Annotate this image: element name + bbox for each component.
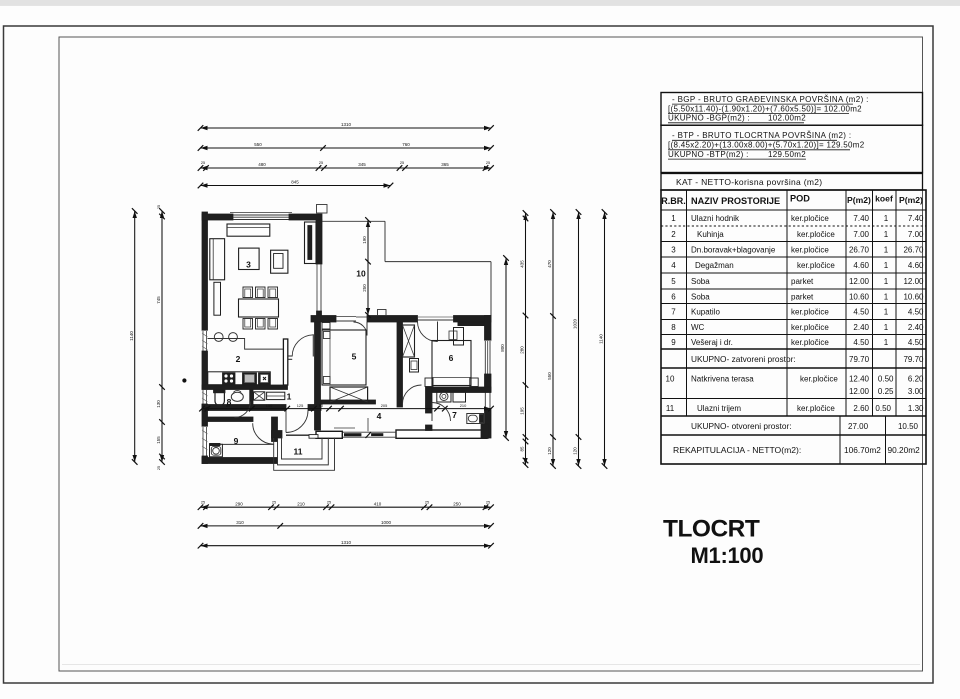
svg-text:Vešeraj i dr.: Vešeraj i dr. bbox=[691, 338, 733, 347]
svg-text:4.50: 4.50 bbox=[853, 308, 869, 317]
svg-text:1140: 1140 bbox=[599, 334, 604, 344]
svg-text:7.00: 7.00 bbox=[853, 230, 869, 239]
svg-text:65: 65 bbox=[226, 403, 230, 408]
svg-text:10: 10 bbox=[666, 375, 675, 384]
svg-text:Kupatilo: Kupatilo bbox=[691, 308, 720, 317]
svg-text:R.BR.: R.BR. bbox=[661, 196, 686, 206]
svg-text:195: 195 bbox=[520, 407, 525, 415]
svg-text:[(8.45x2.20)+(13.00x8.00)+(5.7: [(8.45x2.20)+(13.00x8.00)+(5.70x1.20)]= … bbox=[668, 141, 865, 150]
svg-text:85: 85 bbox=[520, 446, 525, 452]
svg-text:130: 130 bbox=[156, 400, 161, 408]
svg-text:1: 1 bbox=[884, 245, 889, 254]
svg-text:1: 1 bbox=[287, 392, 292, 402]
svg-text:1: 1 bbox=[884, 230, 889, 239]
svg-text:2: 2 bbox=[671, 230, 676, 239]
svg-text:12.00: 12.00 bbox=[903, 277, 924, 286]
svg-text:1: 1 bbox=[884, 308, 889, 317]
svg-text:1: 1 bbox=[884, 261, 889, 270]
svg-text:3: 3 bbox=[246, 260, 251, 270]
svg-text:1310: 1310 bbox=[341, 540, 352, 545]
svg-text:210: 210 bbox=[460, 403, 467, 408]
svg-text:26.70: 26.70 bbox=[903, 245, 924, 254]
svg-text:ker.pločice: ker.pločice bbox=[797, 404, 835, 413]
svg-text:11: 11 bbox=[294, 447, 303, 457]
svg-text:UKUPNO -BTP(m2) :: UKUPNO -BTP(m2) : bbox=[668, 150, 749, 159]
svg-text:2: 2 bbox=[236, 354, 241, 364]
svg-text:120: 120 bbox=[547, 447, 552, 455]
svg-text:P(m2): P(m2) bbox=[847, 195, 871, 205]
svg-text:210: 210 bbox=[297, 501, 305, 506]
svg-text:3: 3 bbox=[671, 245, 676, 254]
svg-text:1310: 1310 bbox=[341, 122, 352, 127]
svg-text:P(m2): P(m2) bbox=[899, 195, 923, 205]
svg-text:1.30: 1.30 bbox=[908, 404, 924, 413]
svg-text:M1:100: M1:100 bbox=[691, 543, 764, 568]
svg-text:0.25: 0.25 bbox=[878, 387, 894, 396]
svg-text:1: 1 bbox=[671, 214, 676, 223]
svg-text:- BGP - BRUTO GRAĐEVINSKA POVR: - BGP - BRUTO GRAĐEVINSKA POVRŠINA (m2) … bbox=[672, 95, 869, 104]
svg-text:Soba: Soba bbox=[691, 292, 710, 301]
svg-text:0.50: 0.50 bbox=[875, 404, 891, 413]
svg-text:760: 760 bbox=[402, 142, 410, 147]
svg-text:290: 290 bbox=[235, 501, 243, 506]
svg-text:1: 1 bbox=[884, 277, 889, 286]
svg-text:410: 410 bbox=[374, 501, 382, 506]
svg-text:4.60: 4.60 bbox=[853, 261, 869, 270]
svg-text:9: 9 bbox=[671, 338, 676, 347]
svg-text:9: 9 bbox=[234, 436, 239, 446]
svg-text:79.70: 79.70 bbox=[903, 355, 924, 364]
svg-text:25: 25 bbox=[201, 500, 205, 504]
svg-text:REKAPITULACIJA - NETTO(m2):: REKAPITULACIJA - NETTO(m2): bbox=[673, 445, 801, 455]
svg-text:25: 25 bbox=[327, 500, 331, 504]
svg-text:ker.pločice: ker.pločice bbox=[791, 323, 829, 332]
svg-text:25: 25 bbox=[486, 500, 490, 504]
svg-text:7: 7 bbox=[671, 308, 676, 317]
svg-text:25: 25 bbox=[157, 466, 161, 470]
svg-text:102.00m2: 102.00m2 bbox=[768, 114, 806, 123]
svg-text:8: 8 bbox=[671, 323, 676, 332]
svg-text:250: 250 bbox=[362, 284, 367, 292]
svg-text:Ulazni hodnik: Ulazni hodnik bbox=[691, 214, 740, 223]
svg-text:310: 310 bbox=[236, 520, 244, 525]
svg-text:TLOCRT: TLOCRT bbox=[663, 516, 760, 543]
svg-text:106.70m2: 106.70m2 bbox=[844, 445, 881, 455]
svg-text:3.00: 3.00 bbox=[908, 387, 924, 396]
svg-text:POD: POD bbox=[790, 194, 810, 204]
svg-text:129.50m2: 129.50m2 bbox=[768, 150, 806, 159]
svg-text:6: 6 bbox=[449, 353, 454, 363]
svg-text:Ulazni trijem: Ulazni trijem bbox=[697, 404, 741, 413]
svg-text:11: 11 bbox=[666, 404, 675, 413]
svg-text:25: 25 bbox=[486, 161, 490, 165]
svg-text:ker.pločice: ker.pločice bbox=[791, 338, 829, 347]
svg-text:27.00: 27.00 bbox=[848, 422, 869, 431]
svg-text:ker.pločice: ker.pločice bbox=[797, 261, 835, 270]
svg-text:79.70: 79.70 bbox=[849, 355, 870, 364]
svg-text:4.60: 4.60 bbox=[908, 261, 924, 270]
svg-text:UKUPNO -BGP(m2) :: UKUPNO -BGP(m2) : bbox=[668, 114, 750, 123]
svg-text:25: 25 bbox=[319, 161, 323, 165]
svg-text:745: 745 bbox=[156, 296, 161, 304]
svg-text:250: 250 bbox=[453, 501, 461, 506]
svg-text:800: 800 bbox=[500, 344, 505, 352]
svg-text:NAZIV PROSTORIJE: NAZIV PROSTORIJE bbox=[691, 196, 780, 206]
svg-text:1: 1 bbox=[884, 292, 889, 301]
svg-text:1: 1 bbox=[884, 323, 889, 332]
svg-text:ker.pločice: ker.pločice bbox=[791, 308, 829, 317]
svg-text:koef: koef bbox=[875, 194, 893, 204]
svg-text:4.50: 4.50 bbox=[908, 338, 924, 347]
svg-text:470: 470 bbox=[547, 260, 552, 268]
svg-text:365: 365 bbox=[441, 162, 449, 167]
svg-text:480: 480 bbox=[258, 162, 266, 167]
svg-text:6: 6 bbox=[671, 292, 676, 301]
svg-text:1020: 1020 bbox=[573, 318, 578, 329]
svg-text:4.50: 4.50 bbox=[908, 308, 924, 317]
svg-text:ker.pločice: ker.pločice bbox=[800, 375, 838, 384]
svg-text:ker.pločice: ker.pločice bbox=[791, 214, 829, 223]
svg-text:435: 435 bbox=[520, 260, 525, 268]
svg-text:ker.pločice: ker.pločice bbox=[791, 245, 829, 254]
svg-text:Dn.boravak+blagovanje: Dn.boravak+blagovanje bbox=[691, 245, 776, 254]
svg-text:WC: WC bbox=[691, 323, 705, 332]
svg-text:5: 5 bbox=[671, 277, 676, 286]
svg-text:1140: 1140 bbox=[129, 331, 134, 341]
svg-text:4.50: 4.50 bbox=[853, 338, 869, 347]
svg-text:ker.pločice: ker.pločice bbox=[797, 230, 835, 239]
svg-text:125: 125 bbox=[297, 403, 304, 408]
svg-text:2.40: 2.40 bbox=[853, 323, 869, 332]
svg-text:7.00: 7.00 bbox=[908, 230, 924, 239]
svg-text:12.40: 12.40 bbox=[849, 375, 870, 384]
svg-text:10.60: 10.60 bbox=[903, 292, 924, 301]
svg-text:12.00: 12.00 bbox=[849, 387, 870, 396]
svg-text:12.00: 12.00 bbox=[849, 277, 870, 286]
svg-text:6.20: 6.20 bbox=[908, 375, 924, 384]
svg-text:Natkrivena terasa: Natkrivena terasa bbox=[691, 375, 754, 384]
svg-text:10: 10 bbox=[356, 269, 366, 279]
svg-text:[(5.50x11.40)-(1.90x1.20)+(7.6: [(5.50x11.40)-(1.90x1.20)+(7.60x5.50)]= … bbox=[668, 104, 862, 113]
svg-text:UKUPNO- otvoreni prostor:: UKUPNO- otvoreni prostor: bbox=[691, 421, 792, 431]
svg-text:845: 845 bbox=[291, 180, 299, 185]
svg-text:5: 5 bbox=[352, 352, 357, 362]
svg-text:26.70: 26.70 bbox=[849, 245, 870, 254]
svg-text:280: 280 bbox=[520, 346, 525, 354]
svg-text:1: 1 bbox=[884, 338, 889, 347]
svg-text:2.60: 2.60 bbox=[853, 404, 869, 413]
svg-text:25: 25 bbox=[201, 161, 205, 165]
svg-text:4: 4 bbox=[671, 261, 676, 270]
svg-text:190: 190 bbox=[362, 236, 367, 244]
svg-text:550: 550 bbox=[254, 142, 262, 147]
svg-text:KAT - NETTO-korisna površina (: KAT - NETTO-korisna površina (m2) bbox=[676, 177, 822, 187]
svg-text:2.40: 2.40 bbox=[908, 323, 924, 332]
svg-text:10.50: 10.50 bbox=[898, 422, 919, 431]
svg-text:1: 1 bbox=[884, 214, 889, 223]
svg-text:7: 7 bbox=[452, 410, 457, 420]
svg-text:0.50: 0.50 bbox=[878, 375, 894, 384]
svg-text:1000: 1000 bbox=[381, 520, 392, 525]
svg-text:345: 345 bbox=[358, 162, 366, 167]
svg-text:Kuhinja: Kuhinja bbox=[697, 230, 724, 239]
svg-text:Soba: Soba bbox=[691, 277, 710, 286]
svg-text:Degažman: Degažman bbox=[695, 261, 734, 270]
svg-text:4: 4 bbox=[377, 411, 382, 421]
svg-text:150: 150 bbox=[266, 403, 273, 408]
svg-text:25: 25 bbox=[272, 500, 276, 504]
svg-text:parket: parket bbox=[791, 277, 814, 286]
svg-text:155: 155 bbox=[156, 436, 161, 444]
svg-text:25: 25 bbox=[157, 205, 161, 209]
svg-text:25: 25 bbox=[400, 161, 404, 165]
svg-text:25: 25 bbox=[425, 500, 429, 504]
svg-text:550: 550 bbox=[547, 372, 552, 380]
svg-text:- BTP - BRUTO TLOCRTNA POVRŠIN: - BTP - BRUTO TLOCRTNA POVRŠINA (m2) : bbox=[672, 131, 851, 140]
svg-text:7.40: 7.40 bbox=[908, 214, 924, 223]
svg-text:120: 120 bbox=[573, 447, 578, 455]
svg-text:parket: parket bbox=[791, 292, 814, 301]
svg-text:205: 205 bbox=[381, 403, 388, 408]
svg-text:7.40: 7.40 bbox=[853, 214, 869, 223]
svg-text:90.20m2: 90.20m2 bbox=[888, 445, 921, 455]
svg-text:10.60: 10.60 bbox=[849, 292, 870, 301]
svg-text:UKUPNO- zatvoreni prostor:: UKUPNO- zatvoreni prostor: bbox=[691, 354, 796, 364]
